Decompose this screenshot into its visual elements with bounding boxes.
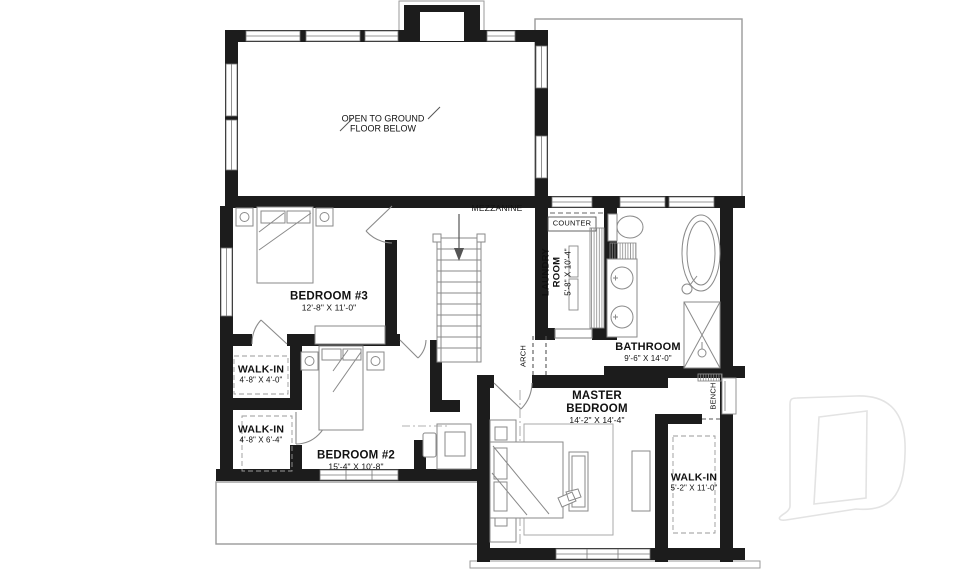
pillow [494,448,507,479]
stairs [433,214,485,362]
bedroom2-door [400,340,426,358]
laundry-label: LAUNDRY ROOM 5'-8" X 10'-4" [541,248,572,296]
dresser [315,326,385,344]
dresser [632,451,650,511]
roof-outline-top-right [535,19,742,202]
walkin-b-label: WALK-IN 4'-8" X 6'-4" [238,423,284,444]
pillow [287,211,310,223]
desk-monitor [445,432,465,456]
pillow [343,349,361,360]
master-bedroom-label: MASTER BEDROOM 14'-2" X 14'-4" [566,390,627,426]
mezzanine-label: MEZZANINE [472,204,523,214]
counter-label: COUNTER [553,220,591,229]
pillow [322,349,341,360]
lamp-icon [320,213,329,222]
chair [423,433,436,457]
walkin-a-label: WALK-IN 4'-8" X 4'-0" [238,363,284,384]
laundry-opening [555,329,592,338]
master-door [494,383,532,409]
bench-shelf [698,374,722,381]
walkin-master-label: WALK-IN 5'-2" X 11'-0" [671,471,718,492]
bench-label: BENCH [710,382,719,409]
arch-label: ARCH [520,345,529,367]
tub-faucet [682,284,692,294]
toilet-icon [617,216,643,238]
walkin-a-door [252,320,287,344]
terrace-outline-bottom-left [216,482,480,544]
washer-dryer-area [590,228,604,328]
vanity-counter [610,243,636,259]
toilet-tank [608,214,617,241]
bedroom3-label: BEDROOM #3 12'-8" X 11'-0" [290,291,368,314]
brand-watermark-d [779,396,905,520]
bedroom2-label: BEDROOM #2 15'-4" X 10'-8" [317,450,395,473]
open-area-label: OPEN TO GROUND FLOOR BELOW [342,114,425,135]
bedroom3-door [366,206,392,243]
lamp-icon [305,357,314,366]
bathroom-label: BATHROOM 9'-6" X 14'-0" [615,341,681,363]
lamp-icon [371,357,380,366]
chimney-flue [420,12,464,41]
pillow [494,482,507,511]
deck-edge-bottom [470,561,760,568]
floor-plan: OPEN TO GROUND FLOOR BELOW MEZZANINE COU… [0,0,960,569]
floor-plan-drawing [0,0,960,569]
lamp-icon [240,213,249,222]
bench-seat [722,378,736,414]
arch-opening [533,336,546,378]
